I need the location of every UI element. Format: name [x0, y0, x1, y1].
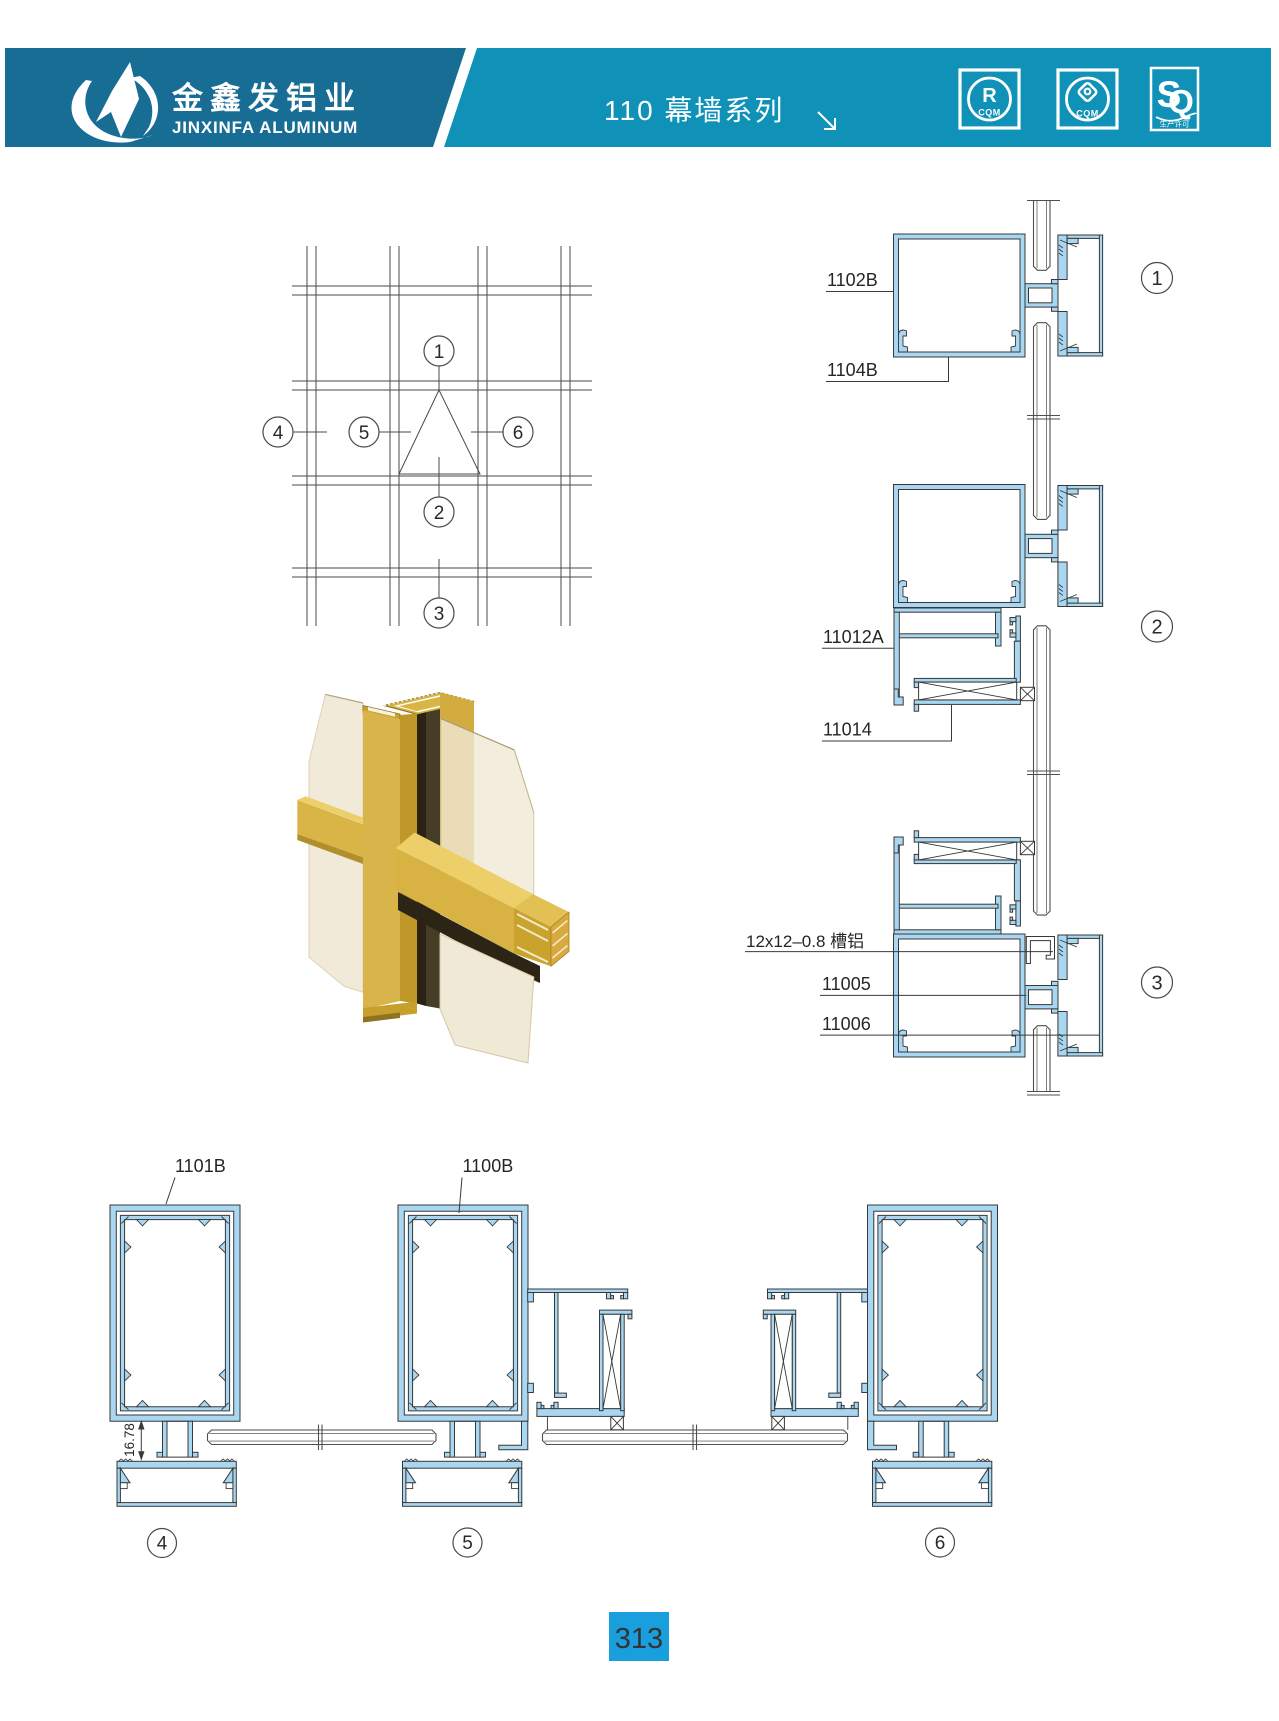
svg-text:12x12–0.8 槽铝: 12x12–0.8 槽铝 — [746, 932, 864, 951]
svg-text:11005: 11005 — [822, 974, 871, 994]
svg-text:CQM: CQM — [1076, 109, 1099, 119]
svg-text:金鑫发铝业: 金鑫发铝业 — [171, 81, 362, 116]
svg-text:生产许可: 生产许可 — [1160, 119, 1190, 129]
svg-text:CQM: CQM — [978, 108, 1001, 118]
svg-text:16.78: 16.78 — [122, 1423, 137, 1457]
svg-text:5: 5 — [359, 423, 370, 444]
svg-text:2: 2 — [434, 503, 445, 524]
svg-text:1104B: 1104B — [827, 360, 878, 380]
svg-text:3: 3 — [434, 604, 445, 625]
svg-text:4: 4 — [273, 423, 284, 444]
svg-text:11014: 11014 — [823, 720, 872, 740]
svg-text:11012A: 11012A — [823, 627, 884, 647]
svg-text:4: 4 — [157, 1534, 168, 1555]
svg-text:1101B: 1101B — [175, 1156, 226, 1176]
svg-text:1100B: 1100B — [463, 1156, 514, 1176]
svg-text:1: 1 — [434, 342, 445, 363]
svg-text:5: 5 — [462, 1533, 473, 1554]
svg-text:6: 6 — [513, 423, 524, 444]
svg-text:313: 313 — [615, 1623, 663, 1655]
svg-text:6: 6 — [935, 1533, 946, 1554]
svg-text:110 幕墙系列: 110 幕墙系列 — [604, 95, 784, 126]
svg-text:R: R — [982, 85, 997, 107]
svg-text:S: S — [1157, 74, 1182, 115]
svg-text:1: 1 — [1151, 268, 1162, 290]
svg-text:11006: 11006 — [822, 1014, 871, 1034]
svg-text:3: 3 — [1151, 973, 1162, 995]
svg-text:1102B: 1102B — [827, 270, 878, 290]
svg-text:2: 2 — [1151, 617, 1162, 639]
svg-text:JINXINFA ALUMINUM: JINXINFA ALUMINUM — [172, 118, 358, 137]
